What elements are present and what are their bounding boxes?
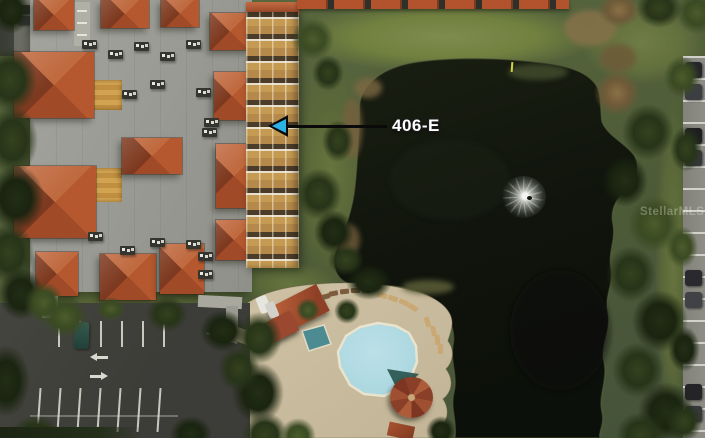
ac-unit [202, 128, 217, 137]
walk-pad-mark [77, 34, 87, 36]
ac-unit [150, 80, 165, 89]
tile-roof [214, 72, 250, 120]
tree [96, 297, 126, 321]
ac-unit [134, 42, 149, 51]
parking-line [121, 321, 123, 347]
ac-unit [196, 88, 211, 97]
gazebo-roof [390, 377, 433, 418]
tree [666, 226, 698, 268]
shore-brush [600, 44, 636, 72]
parking-line [100, 321, 102, 347]
pond-fountain [500, 176, 546, 218]
tile-roof [161, 0, 199, 27]
tree [312, 55, 344, 91]
walk-pad-mark [77, 22, 87, 24]
parking-line [136, 388, 141, 432]
parking-line [96, 388, 101, 432]
tree [426, 416, 456, 438]
tree [292, 18, 334, 60]
pavement-arrow-right [90, 372, 108, 380]
ac-unit [88, 232, 103, 241]
tile-roof [100, 254, 156, 300]
parking-line [116, 388, 121, 432]
shore-brush [402, 280, 454, 294]
ac-unit [120, 246, 135, 255]
tile-roof [210, 13, 250, 50]
parking-line [156, 388, 161, 432]
parking-line [30, 415, 178, 417]
walk-pad-mark [77, 10, 87, 12]
tree [666, 402, 702, 438]
tile-roof [101, 0, 149, 28]
tree [670, 126, 702, 172]
tree [146, 296, 188, 332]
ac-unit [186, 40, 201, 49]
tree [622, 104, 674, 160]
annotation-arrow-line [286, 125, 387, 128]
tree [218, 346, 260, 392]
palm-tree [334, 298, 360, 324]
tree [668, 326, 700, 372]
ac-unit [150, 238, 165, 247]
ac-unit [108, 50, 123, 59]
pavement-arrow-left [90, 353, 108, 361]
ac-unit [122, 90, 137, 99]
watermark: StellarMLS [640, 206, 704, 218]
ac-unit [204, 118, 219, 127]
courtyard [92, 168, 122, 202]
parking-line [76, 388, 81, 432]
hedge [0, 427, 142, 438]
annotation-arrowhead-icon [272, 119, 286, 133]
water-reflection [390, 140, 510, 220]
parking-line [142, 321, 144, 347]
palm-tree [296, 298, 320, 322]
ac-unit [82, 40, 97, 49]
tree [346, 264, 392, 300]
building-facade-balconies [246, 12, 299, 268]
tile-roof [122, 138, 182, 174]
tile-roof [34, 0, 74, 30]
tree [664, 56, 700, 98]
ac-unit [186, 240, 201, 249]
unit-label: 406-E [392, 117, 440, 134]
water-reflection [510, 270, 610, 390]
roof-row [297, 0, 569, 9]
tree [42, 296, 88, 338]
aerial-photo: StellarMLS 406-E [0, 0, 705, 438]
ac-unit [198, 252, 213, 261]
shore-grass [508, 64, 568, 80]
ac-unit [160, 52, 175, 61]
lounge-chair [438, 344, 443, 354]
shore-brush [354, 78, 382, 98]
ac-unit [198, 270, 213, 279]
